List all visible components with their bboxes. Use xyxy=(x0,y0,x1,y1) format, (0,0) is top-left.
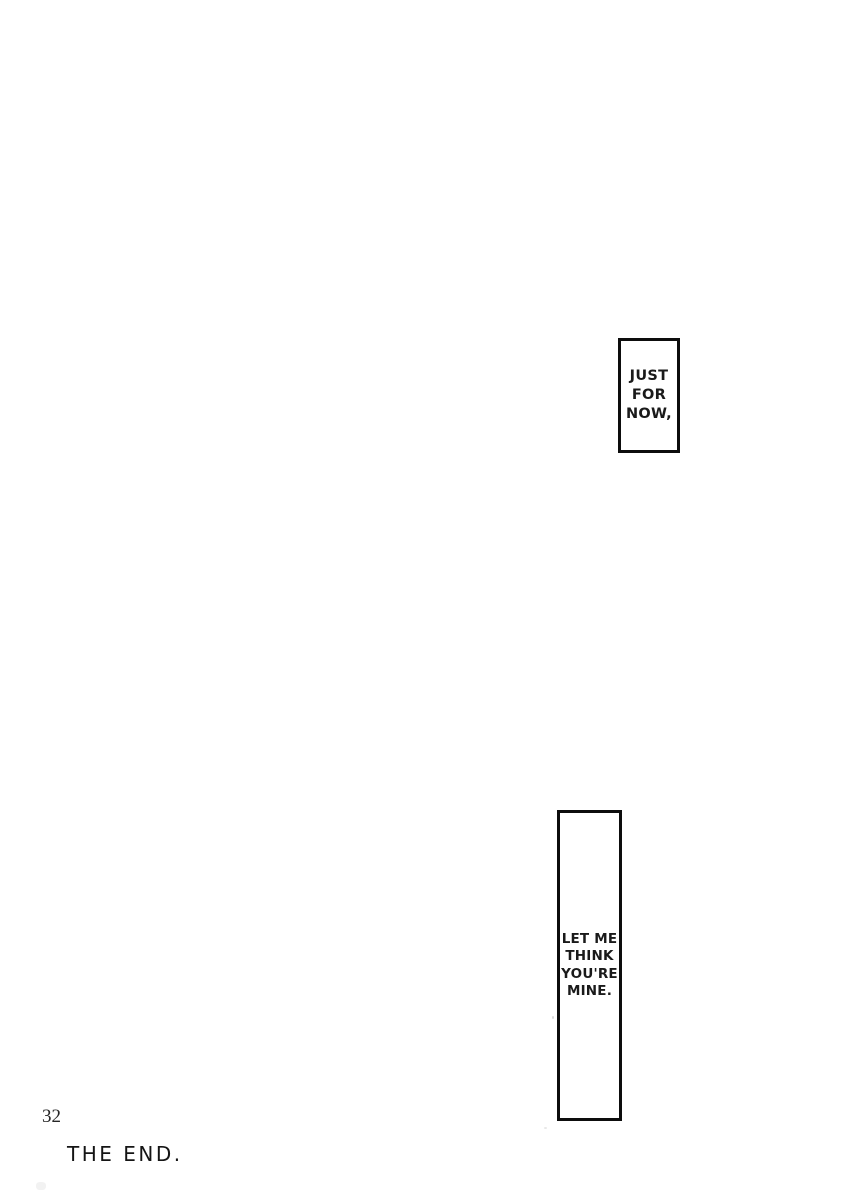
scan-speck xyxy=(36,1182,46,1190)
scan-speck xyxy=(552,1016,554,1019)
end-label: THE END. xyxy=(67,1142,183,1166)
caption-line: YOU'RE xyxy=(561,966,618,984)
scan-speck xyxy=(544,1127,547,1129)
manga-page: JUST FOR NOW, LET ME THINK YOU'RE MINE. … xyxy=(0,0,850,1200)
caption-line: NOW, xyxy=(626,405,672,424)
caption-box-just-for-now: JUST FOR NOW, xyxy=(618,338,680,453)
caption-line: THINK xyxy=(565,948,613,966)
caption-box-let-me-think: LET ME THINK YOU'RE MINE. xyxy=(557,810,622,1121)
caption-line: LET ME xyxy=(562,931,618,949)
caption-line: FOR xyxy=(632,386,666,405)
page-number: 32 xyxy=(42,1106,61,1128)
caption-line: JUST xyxy=(630,367,669,386)
caption-line: MINE. xyxy=(567,983,612,1001)
